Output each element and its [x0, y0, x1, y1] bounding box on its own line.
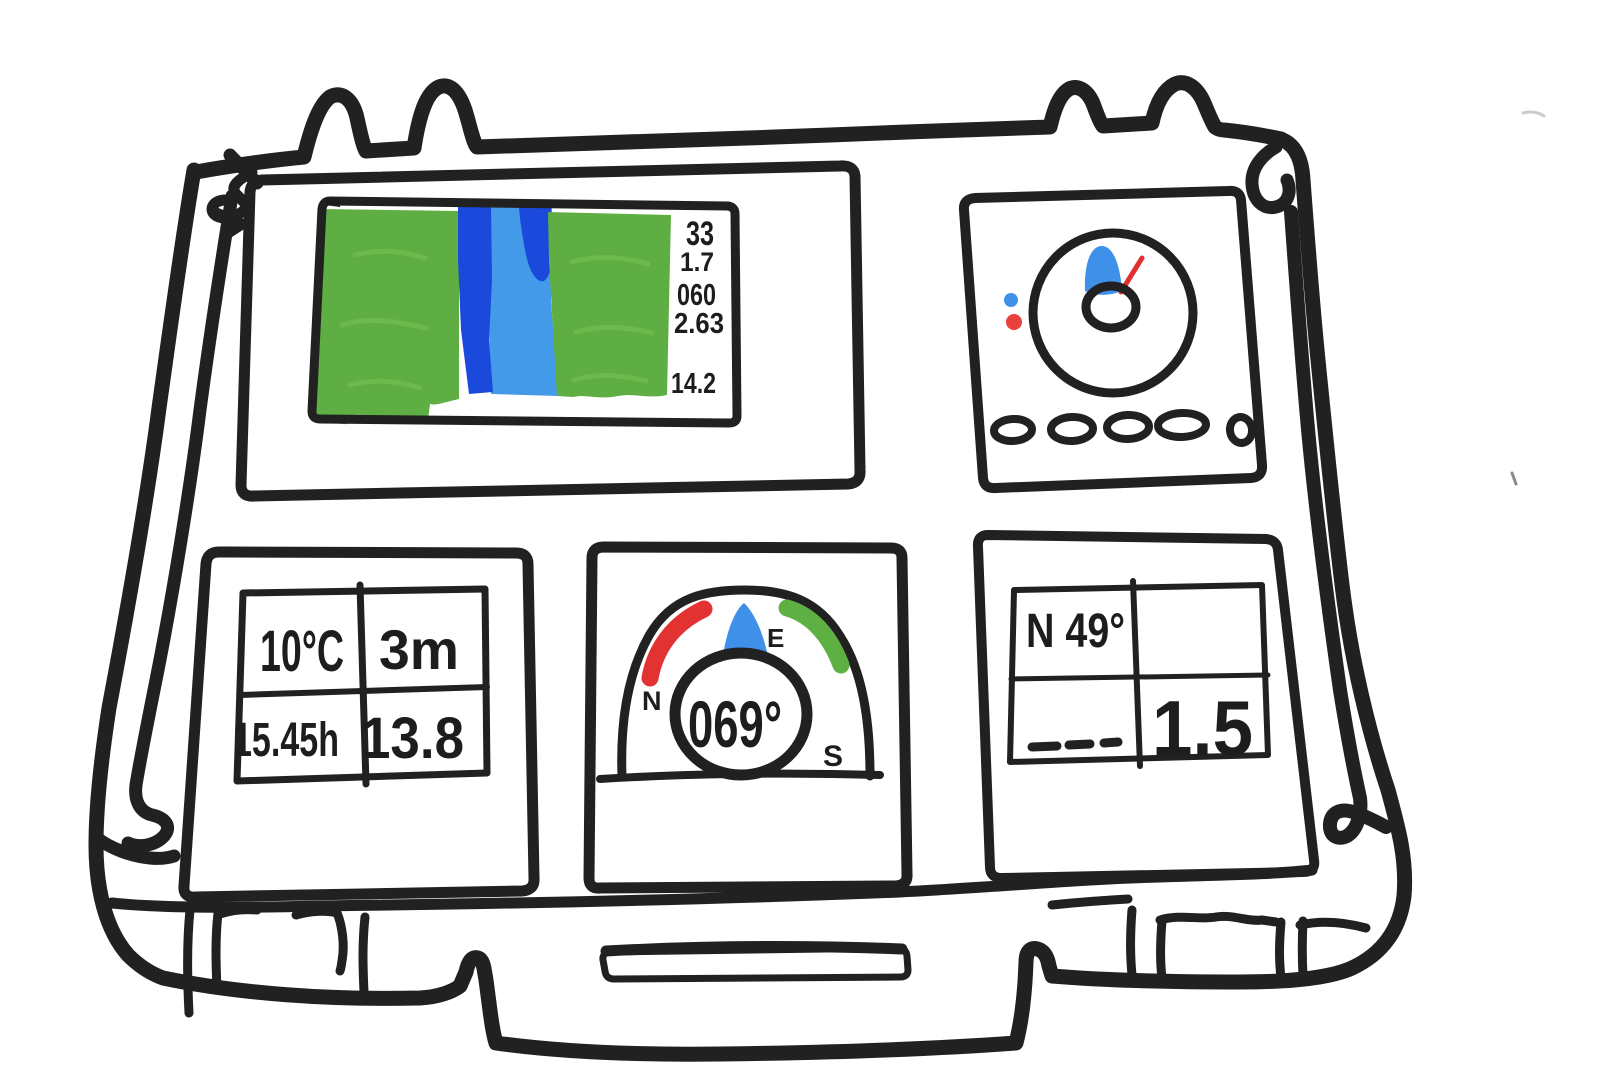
svg-text:060: 060	[677, 277, 716, 312]
svg-text:1.7: 1.7	[680, 247, 714, 277]
svg-text:13.8: 13.8	[361, 706, 464, 771]
svg-text:14.2: 14.2	[671, 368, 716, 400]
svg-text:N: N	[642, 686, 662, 716]
svg-text:1.5: 1.5	[1152, 684, 1253, 772]
svg-text:10°C: 10°C	[260, 619, 344, 684]
svg-text:N 49°: N 49°	[1026, 605, 1125, 658]
svg-text:E: E	[767, 623, 784, 653]
svg-text:069°: 069°	[688, 687, 782, 761]
svg-text:S: S	[823, 740, 843, 773]
svg-text:2.63: 2.63	[674, 308, 724, 340]
svg-text:15.45h: 15.45h	[233, 714, 339, 767]
svg-text:3m: 3m	[379, 618, 459, 681]
